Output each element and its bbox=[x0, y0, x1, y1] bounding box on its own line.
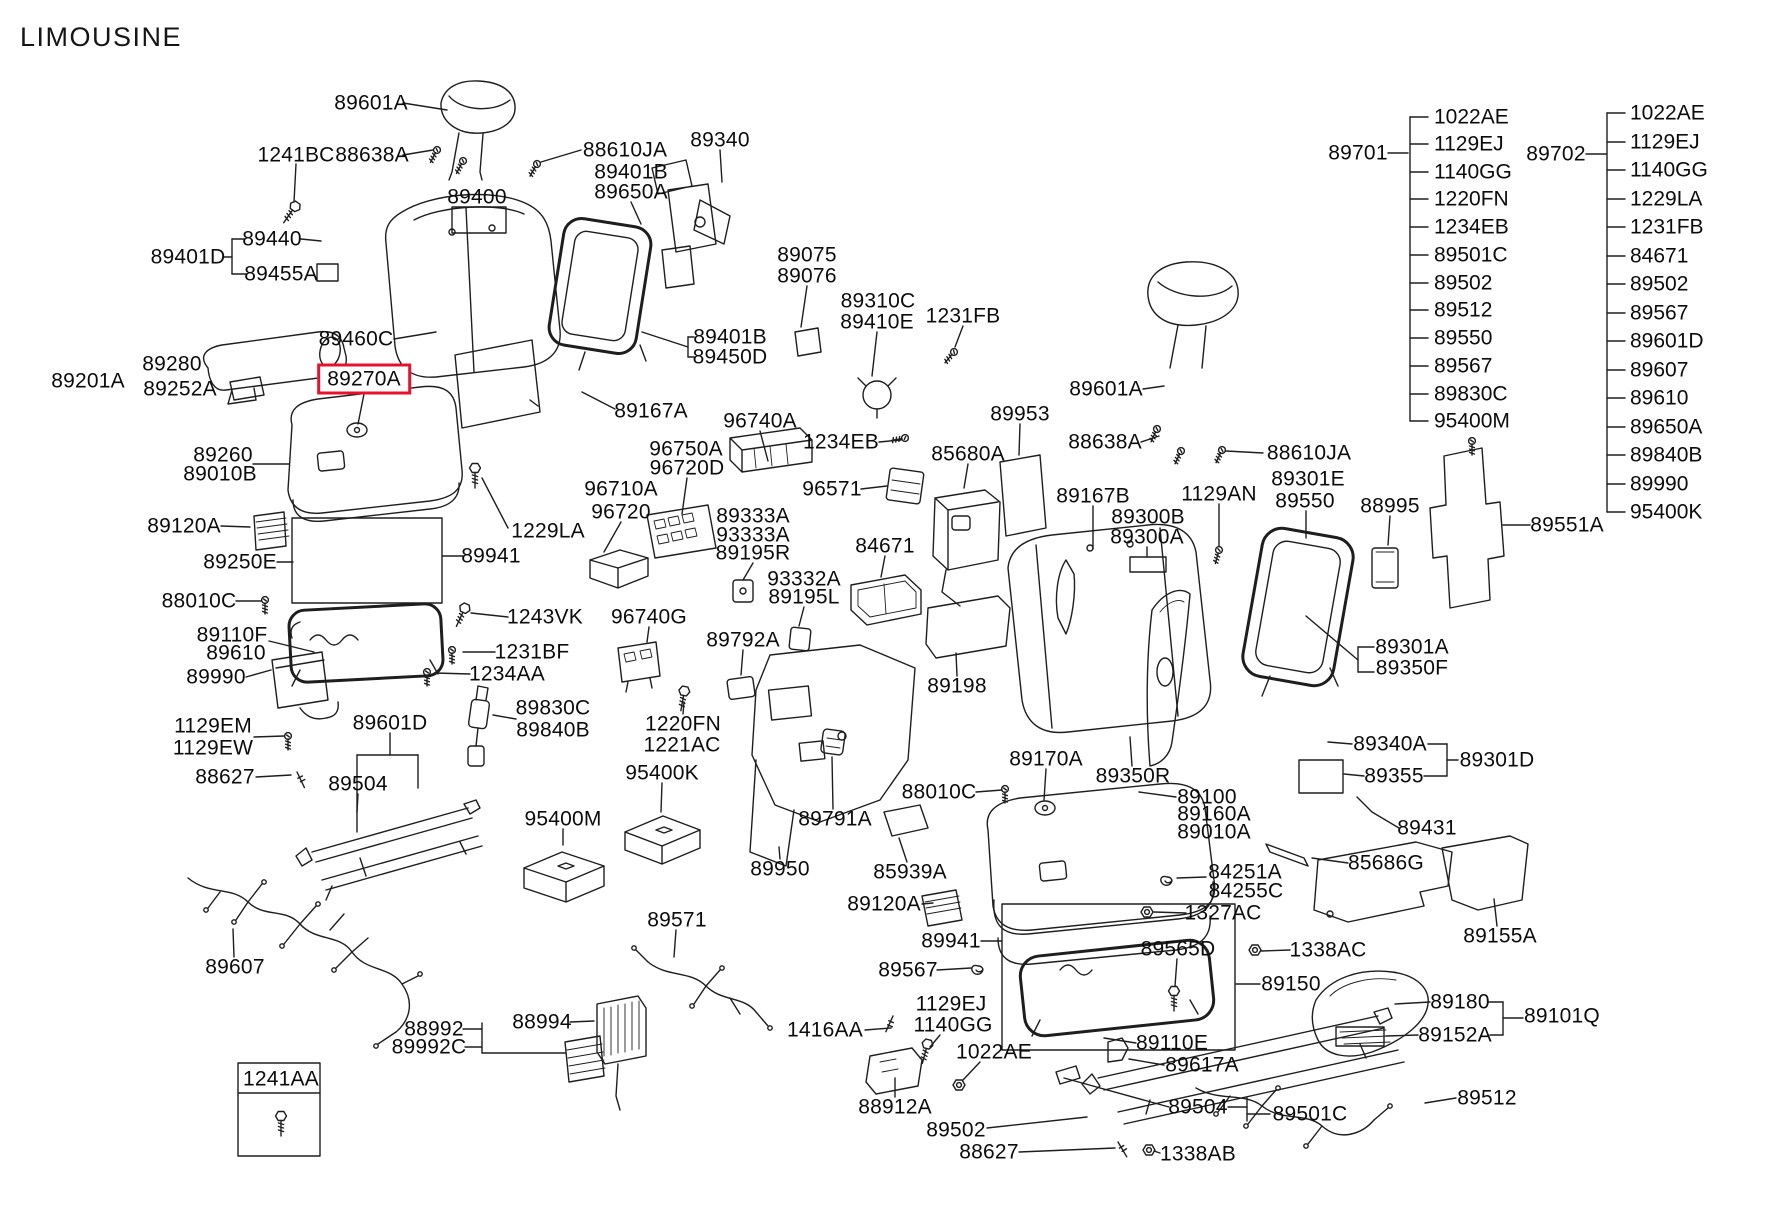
parts-list-item-1234EB: 1234EB bbox=[1434, 217, 1509, 238]
leader-line bbox=[631, 202, 641, 224]
leader-line bbox=[674, 930, 676, 957]
part-label-89152A: 89152A bbox=[1418, 1025, 1492, 1046]
page-title: LIMOUSINE bbox=[20, 22, 182, 53]
part-label-89270A-highlighted: 89270A bbox=[317, 364, 411, 395]
part-label-88995: 88995 bbox=[1360, 496, 1419, 517]
part-label-89941: 89941 bbox=[461, 546, 520, 567]
part-label-96571: 96571 bbox=[802, 479, 861, 500]
part-label-89565D: 89565D bbox=[1141, 939, 1216, 960]
part-label-96710A: 96710A bbox=[584, 479, 658, 500]
leader-line bbox=[661, 783, 662, 812]
nut-icon bbox=[1141, 907, 1153, 917]
leader-line bbox=[256, 775, 291, 777]
part-label-1243VK: 1243VK bbox=[507, 607, 583, 628]
leader-line bbox=[246, 670, 271, 677]
side-flap-illustration bbox=[272, 652, 338, 719]
grouping-box bbox=[317, 264, 338, 281]
part-label-89601D: 89601D bbox=[353, 713, 428, 734]
screw-icon bbox=[1148, 424, 1162, 443]
leader-line bbox=[541, 150, 581, 162]
parts-list-item-89567: 89567 bbox=[1630, 303, 1688, 324]
parts-list-item-89610: 89610 bbox=[1630, 388, 1688, 409]
leader-line bbox=[582, 392, 615, 409]
parts-list-item-1231FB: 1231FB bbox=[1630, 217, 1704, 238]
leader-line bbox=[482, 478, 508, 528]
parts-list-item-95400M: 95400M bbox=[1434, 411, 1510, 432]
leader-line bbox=[956, 653, 957, 676]
part-label-89075: 89075 bbox=[777, 245, 836, 266]
part-label-89300B: 89300B bbox=[1111, 507, 1185, 528]
leader-line bbox=[1425, 1098, 1456, 1103]
leader-line bbox=[963, 1062, 980, 1080]
parts-list-item-1140GG: 1140GG bbox=[1630, 160, 1708, 181]
parts-list-item-89830C: 89830C bbox=[1434, 384, 1508, 405]
part-label-88010C-2: 88010C bbox=[902, 782, 977, 803]
part-label-89250E: 89250E bbox=[203, 552, 277, 573]
part-label-95400M: 95400M bbox=[524, 809, 601, 830]
part-label-1229LA: 1229LA bbox=[511, 521, 585, 542]
switch-89333A-illustration bbox=[733, 580, 753, 602]
part-label-89410E: 89410E bbox=[840, 312, 914, 333]
part-label-89101Q: 89101Q bbox=[1524, 1006, 1600, 1027]
screw-icon bbox=[527, 159, 542, 177]
part-label-1022AE: 1022AE bbox=[956, 1042, 1032, 1063]
leader-line bbox=[801, 286, 807, 327]
screw-icon bbox=[453, 156, 467, 175]
part-label-1241BC: 1241BC bbox=[257, 145, 334, 166]
left-seat-rails-illustration bbox=[296, 800, 482, 900]
part-label-89460C: 89460C bbox=[319, 329, 394, 350]
part-label-89120A-2: 89120A bbox=[847, 894, 921, 915]
parts-list-item-95400K: 95400K bbox=[1630, 502, 1702, 523]
back-panel-illustration bbox=[455, 340, 540, 428]
leader-line bbox=[435, 673, 470, 674]
leader-line bbox=[1139, 792, 1176, 797]
bolt-icon bbox=[470, 464, 481, 489]
leader-line bbox=[1261, 950, 1290, 951]
parts-list-item-1022AE: 1022AE bbox=[1434, 107, 1509, 128]
screw-icon bbox=[1172, 446, 1186, 465]
right-vent-grille-illustration bbox=[922, 890, 962, 926]
screw-icon bbox=[424, 669, 431, 686]
leader-line bbox=[1306, 616, 1358, 660]
part-label-89990: 89990 bbox=[186, 667, 245, 688]
part-label-1129EW: 1129EW bbox=[173, 738, 253, 759]
part-label-89840B: 89840B bbox=[516, 720, 590, 741]
leader-line bbox=[471, 613, 508, 617]
part-label-89617A: 89617A bbox=[1165, 1055, 1239, 1076]
back-panel-89551A-illustration bbox=[1430, 448, 1504, 608]
ecu-box-95400K-illustration bbox=[625, 816, 700, 864]
leader-line bbox=[976, 790, 1002, 792]
part-label-89502: 89502 bbox=[926, 1120, 985, 1141]
part-label-89792A: 89792A bbox=[706, 630, 780, 651]
leader-line bbox=[955, 326, 963, 347]
panel-89167B-illustration bbox=[1056, 560, 1074, 634]
leader-line bbox=[720, 150, 722, 182]
leader-line bbox=[1388, 516, 1390, 545]
leader-line bbox=[1328, 742, 1352, 744]
part-label-89550: 89550 bbox=[1275, 491, 1334, 512]
leader-line bbox=[1395, 1002, 1430, 1004]
part-label-89992C: 89992C bbox=[392, 1037, 467, 1058]
clip-icon bbox=[972, 965, 983, 974]
screw-icon bbox=[262, 597, 269, 614]
parts-list-item-89567: 89567 bbox=[1434, 356, 1492, 377]
seatbelt-buckle-illustration bbox=[468, 686, 490, 766]
parts-list-item-89502: 89502 bbox=[1630, 274, 1688, 295]
leader-line bbox=[604, 522, 621, 552]
part-label-89450D: 89450D bbox=[693, 347, 768, 368]
part-label-1338AC: 1338AC bbox=[1289, 940, 1366, 961]
grouping-boxes bbox=[238, 207, 1384, 1156]
leader-line bbox=[964, 464, 968, 488]
part-label-89504-2: 89504 bbox=[1168, 1097, 1227, 1118]
bolt-icon bbox=[917, 1038, 934, 1065]
part-label-89310C: 89310C bbox=[841, 291, 916, 312]
part-label-89301E: 89301E bbox=[1271, 469, 1345, 490]
bolt-icon bbox=[1169, 987, 1180, 1012]
leader-line bbox=[743, 563, 753, 580]
harness-89571-illustration bbox=[632, 946, 772, 1030]
screw-icon bbox=[285, 733, 292, 750]
parts-list-item-1220FN: 1220FN bbox=[1434, 189, 1509, 210]
leader-line bbox=[832, 757, 833, 809]
screw-icon bbox=[427, 145, 441, 164]
leader-line bbox=[861, 486, 887, 489]
part-label-88638A-2: 88638A bbox=[1068, 432, 1142, 453]
part-label-88912A: 88912A bbox=[858, 1097, 932, 1118]
bolt-icon bbox=[279, 200, 302, 226]
part-label-89010A: 89010A bbox=[1177, 822, 1251, 843]
screw-icon bbox=[1212, 546, 1223, 565]
part-label-89301D: 89301D bbox=[1460, 750, 1535, 771]
part-label-89301A: 89301A bbox=[1375, 637, 1449, 658]
parts-list-label-89701: 89701 bbox=[1328, 143, 1387, 164]
cover-shell-89180-illustration bbox=[1312, 971, 1428, 1056]
leader-line bbox=[1130, 737, 1132, 766]
parts-list-item-89840B: 89840B bbox=[1630, 445, 1702, 466]
leader-line bbox=[899, 838, 907, 862]
part-label-89431: 89431 bbox=[1397, 818, 1456, 839]
part-label-89501C: 89501C bbox=[1273, 1104, 1348, 1125]
grouping-box bbox=[1130, 557, 1166, 572]
grouping-box bbox=[452, 207, 506, 233]
leader-line bbox=[1141, 436, 1159, 442]
module-88995-illustration bbox=[1372, 548, 1398, 588]
parts-list-item-1129EJ: 1129EJ bbox=[1630, 132, 1700, 153]
part-label-96740G: 96740G bbox=[611, 607, 687, 628]
module-96740A-illustration bbox=[730, 428, 812, 472]
part-label-89650A: 89650A bbox=[594, 182, 668, 203]
part-label-84255C: 84255C bbox=[1209, 881, 1284, 902]
right-seatback-illustration bbox=[1008, 524, 1211, 732]
pin-icon bbox=[295, 772, 307, 788]
part-label-84671: 84671 bbox=[855, 536, 914, 557]
bolt-icon bbox=[451, 602, 471, 629]
leader-line bbox=[922, 903, 933, 904]
part-label-1129AN: 1129AN bbox=[1181, 484, 1257, 505]
part-label-89504: 89504 bbox=[328, 774, 387, 795]
part-label-1416AA: 1416AA bbox=[787, 1020, 863, 1041]
part-label-89610: 89610 bbox=[206, 643, 265, 664]
leader-line bbox=[357, 794, 358, 812]
part-label-89401D: 89401D bbox=[151, 247, 226, 268]
leader-line bbox=[1177, 877, 1206, 878]
parts-list-item-89990: 89990 bbox=[1630, 474, 1688, 495]
parts-diagram-page: LIMOUSINE 89601A1241BC88638A88610JA89401… bbox=[0, 0, 1772, 1211]
bolt-icon bbox=[276, 1112, 287, 1137]
part-label-89607: 89607 bbox=[205, 957, 264, 978]
screw-icon bbox=[449, 647, 456, 664]
leader-line bbox=[493, 715, 516, 719]
part-label-88627: 88627 bbox=[195, 767, 254, 788]
armrest-box-85680A-illustration bbox=[933, 490, 1000, 606]
leader-line bbox=[1143, 386, 1164, 389]
leader-line bbox=[570, 1021, 594, 1022]
leader-line bbox=[872, 332, 877, 376]
part-label-89401B: 89401B bbox=[594, 162, 668, 183]
part-label-89953: 89953 bbox=[990, 404, 1049, 425]
left-cushion-illustration bbox=[288, 386, 462, 521]
part-label-89350F: 89350F bbox=[1376, 658, 1448, 679]
parts-list-item-89650A: 89650A bbox=[1630, 417, 1702, 438]
amplifier-88994-illustration bbox=[565, 996, 646, 1110]
part-label-89950: 89950 bbox=[750, 859, 809, 880]
console-tray-84671-illustration bbox=[851, 575, 921, 625]
floor-mats-89155A-illustration bbox=[1314, 836, 1528, 922]
part-label-89280: 89280 bbox=[142, 354, 201, 375]
part-label-89571: 89571 bbox=[647, 910, 706, 931]
part-label-89551A: 89551A bbox=[1530, 515, 1604, 536]
parts-list-item-1229LA: 1229LA bbox=[1630, 189, 1702, 210]
parts-list-item-1129EJ: 1129EJ bbox=[1434, 134, 1504, 155]
pin-icon bbox=[1117, 1142, 1128, 1157]
part-label-1327AC: 1327AC bbox=[1184, 903, 1261, 924]
switch-93332A-illustration bbox=[789, 627, 811, 651]
part-label-89355: 89355 bbox=[1364, 766, 1423, 787]
part-label-88610JA-2: 88610JA bbox=[1267, 443, 1351, 464]
parts-list-item-1140GG: 1140GG bbox=[1434, 162, 1512, 183]
part-label-89601A-2: 89601A bbox=[1069, 379, 1143, 400]
part-label-88994: 88994 bbox=[512, 1012, 571, 1033]
part-label-89455A: 89455A bbox=[244, 264, 318, 285]
part-label-1234EB: 1234EB bbox=[803, 432, 879, 453]
grouping-box bbox=[292, 518, 442, 603]
part-label-1338AB: 1338AB bbox=[1160, 1144, 1236, 1165]
leader-line bbox=[358, 394, 364, 424]
part-label-89400: 89400 bbox=[447, 187, 506, 208]
parts-list-item-89501C: 89501C bbox=[1434, 245, 1508, 266]
switch-box-96720-illustration bbox=[590, 550, 648, 588]
leader-line bbox=[879, 440, 901, 442]
leader-line bbox=[1129, 1059, 1164, 1065]
screw-icon bbox=[1469, 438, 1476, 455]
left-seatback-illustration bbox=[386, 194, 561, 377]
part-label-89350R: 89350R bbox=[1096, 766, 1171, 787]
part-label-1241AA: 1241AA bbox=[243, 1069, 319, 1090]
vent-grille-illustration bbox=[254, 512, 289, 550]
part-label-89340: 89340 bbox=[690, 130, 749, 151]
leader-line bbox=[881, 556, 885, 577]
part-label-89195R: 89195R bbox=[716, 543, 791, 564]
screw-icon bbox=[1213, 445, 1227, 464]
leader-line bbox=[647, 627, 649, 642]
part-label-89120A: 89120A bbox=[147, 516, 221, 537]
leader-line bbox=[1226, 451, 1263, 453]
leader-line bbox=[1344, 774, 1364, 776]
part-label-1221AC: 1221AC bbox=[643, 735, 720, 756]
part-label-89155A: 89155A bbox=[1463, 926, 1537, 947]
parts-list-item-89512: 89512 bbox=[1434, 300, 1492, 321]
leader-line bbox=[987, 1117, 1087, 1128]
left-cushion-frame-illustration bbox=[288, 603, 444, 686]
part-label-89440: 89440 bbox=[242, 229, 301, 250]
part-label-89791A: 89791A bbox=[798, 809, 872, 830]
panel-89953-illustration bbox=[1000, 455, 1046, 536]
part-label-89830C: 89830C bbox=[516, 698, 591, 719]
part-label-89401B-2: 89401B bbox=[693, 327, 767, 348]
part-label-96740A: 96740A bbox=[723, 411, 797, 432]
leader-line bbox=[1494, 899, 1497, 926]
leader-line bbox=[301, 239, 321, 241]
leader-line bbox=[233, 929, 234, 957]
part-label-1129EM: 1129EM bbox=[174, 716, 252, 737]
leader-line bbox=[642, 332, 688, 347]
part-label-88627-2: 88627 bbox=[959, 1142, 1018, 1163]
part-label-89601A: 89601A bbox=[334, 93, 408, 114]
grouping-box bbox=[1299, 760, 1343, 793]
part-label-85939A: 85939A bbox=[873, 862, 947, 883]
leader-line bbox=[1357, 797, 1399, 828]
seatback-frame-illustration bbox=[547, 216, 654, 370]
nut-icon bbox=[1249, 945, 1261, 955]
leader-line bbox=[1019, 1148, 1115, 1152]
parts-list-item-89607: 89607 bbox=[1630, 360, 1688, 381]
nut-icon bbox=[1143, 1145, 1155, 1155]
part-label-89076: 89076 bbox=[777, 266, 836, 287]
clip-icon bbox=[1161, 876, 1172, 885]
parts-list-item-89502: 89502 bbox=[1434, 273, 1492, 294]
part-label-1234AA: 1234AA bbox=[469, 664, 545, 685]
right-seatback-frame-illustration bbox=[1240, 525, 1357, 696]
leader-line bbox=[221, 526, 250, 527]
leader-line bbox=[294, 164, 296, 202]
ecu-box-95400M-illustration bbox=[524, 852, 604, 902]
part-label-89150: 89150 bbox=[1261, 974, 1320, 995]
part-label-1220FN: 1220FN bbox=[645, 714, 721, 735]
parts-list-item-84671: 84671 bbox=[1630, 246, 1688, 267]
part-label-89110E: 89110E bbox=[1136, 1033, 1208, 1054]
bracket-88912A-illustration bbox=[866, 1048, 922, 1094]
part-label-89167B: 89167B bbox=[1056, 486, 1130, 507]
tray-mat-89198-illustration bbox=[926, 596, 1010, 658]
right-headrest-illustration bbox=[1148, 262, 1238, 368]
parts-list-label-89702: 89702 bbox=[1526, 144, 1585, 165]
mat-85939A-illustration bbox=[884, 805, 928, 836]
part-label-89300A: 89300A bbox=[1110, 527, 1184, 548]
latch-89410E-illustration bbox=[795, 328, 896, 418]
part-label-89180: 89180 bbox=[1430, 992, 1489, 1013]
screw-icon bbox=[942, 347, 958, 365]
left-headrest-illustration bbox=[441, 81, 515, 180]
part-label-89201A: 89201A bbox=[51, 371, 125, 392]
part-label-89010B: 89010B bbox=[183, 464, 257, 485]
pin-icon bbox=[881, 1016, 898, 1032]
part-label-1140GG: 1140GG bbox=[913, 1015, 992, 1036]
switch-89792A-illustration bbox=[727, 676, 756, 699]
part-label-88610JA: 88610JA bbox=[583, 140, 667, 161]
part-label-85686G: 85686G bbox=[1348, 853, 1424, 874]
part-label-89512: 89512 bbox=[1457, 1088, 1516, 1109]
leader-line bbox=[741, 650, 743, 675]
part-label-89167A: 89167A bbox=[614, 401, 688, 422]
part-label-89170A: 89170A bbox=[1009, 749, 1083, 770]
nut-icon bbox=[953, 1080, 965, 1090]
part-label-95400K: 95400K bbox=[625, 763, 699, 784]
part-label-89195L: 89195L bbox=[768, 587, 839, 608]
parts-list-item-89550: 89550 bbox=[1434, 328, 1492, 349]
module-96571-illustration bbox=[886, 468, 924, 504]
part-label-89567: 89567 bbox=[878, 960, 937, 981]
part-label-1129EJ: 1129EJ bbox=[916, 994, 987, 1015]
parts-list-item-89601D: 89601D bbox=[1630, 331, 1704, 352]
leader-line bbox=[799, 607, 804, 626]
leader-line bbox=[1154, 912, 1186, 913]
leader-line bbox=[1019, 424, 1020, 455]
part-label-88010C: 88010C bbox=[162, 591, 237, 612]
keypad-96740G-illustration bbox=[618, 642, 660, 692]
part-label-96720D: 96720D bbox=[650, 458, 725, 479]
part-label-89252A: 89252A bbox=[143, 379, 217, 400]
parts-list-item-1022AE: 1022AE bbox=[1630, 103, 1705, 124]
leader-line bbox=[937, 968, 971, 970]
leader-line bbox=[1175, 959, 1177, 986]
leader-line bbox=[254, 736, 284, 737]
leader-line bbox=[1064, 1078, 1169, 1107]
part-label-88638A: 88638A bbox=[335, 145, 409, 166]
part-label-96720: 96720 bbox=[591, 502, 650, 523]
screw-icon bbox=[891, 434, 909, 444]
part-label-1231BF: 1231BF bbox=[495, 642, 570, 663]
part-label-89941-2: 89941 bbox=[921, 931, 980, 952]
part-label-85680A: 85680A bbox=[931, 444, 1005, 465]
part-label-1231FB: 1231FB bbox=[926, 306, 1001, 327]
part-label-89198: 89198 bbox=[927, 676, 986, 697]
leader-line bbox=[394, 332, 436, 339]
leader-line bbox=[1386, 1035, 1418, 1036]
part-label-89340A: 89340A bbox=[1353, 734, 1427, 755]
